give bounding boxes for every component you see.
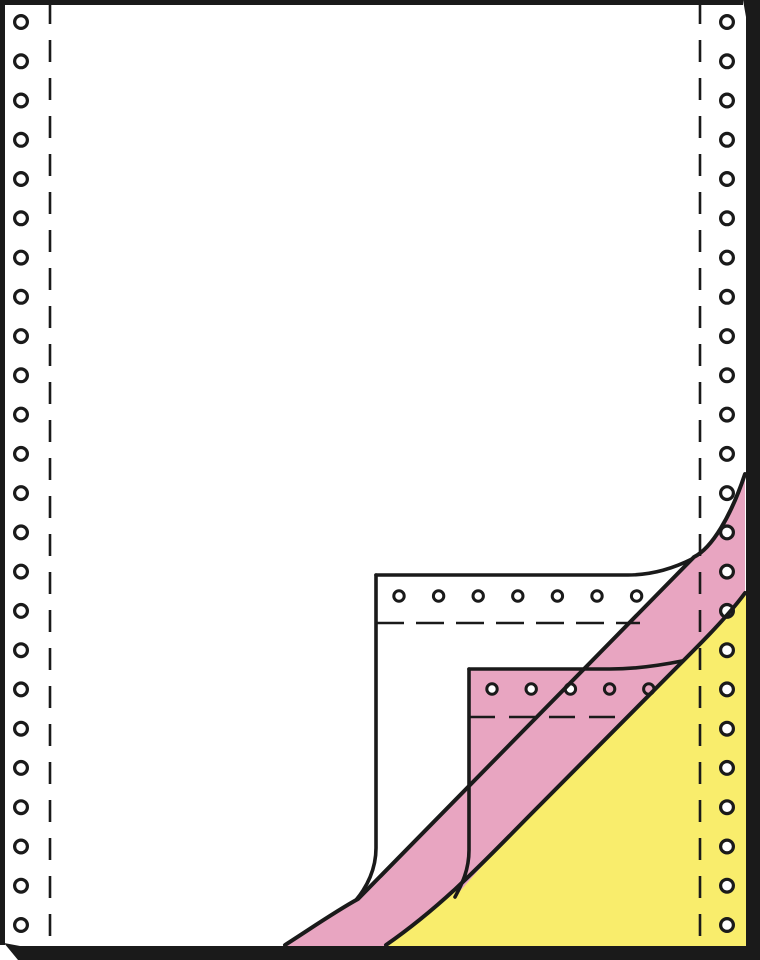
sprocket-hole bbox=[526, 684, 536, 694]
sprocket-hole bbox=[721, 722, 734, 735]
sprocket-hole bbox=[721, 173, 734, 186]
sprocket-hole bbox=[721, 644, 734, 657]
page-top-border bbox=[0, 0, 743, 5]
sprocket-hole bbox=[433, 591, 443, 601]
sprocket-hole bbox=[721, 448, 734, 461]
sprocket-hole bbox=[721, 565, 734, 578]
sprocket-hole bbox=[15, 369, 28, 382]
sprocket-hole bbox=[721, 55, 734, 68]
sprocket-hole bbox=[604, 684, 614, 694]
sprocket-hole bbox=[721, 290, 734, 303]
sprocket-hole bbox=[15, 801, 28, 814]
sprocket-hole bbox=[721, 94, 734, 107]
sprocket-hole bbox=[721, 879, 734, 892]
sprocket-hole bbox=[15, 94, 28, 107]
sprocket-hole bbox=[15, 644, 28, 657]
sprocket-hole bbox=[721, 212, 734, 225]
sprocket-hole bbox=[487, 684, 497, 694]
sprocket-hole bbox=[15, 133, 28, 146]
sprocket-hole bbox=[15, 605, 28, 618]
sprocket-hole bbox=[15, 919, 28, 932]
sprocket-hole bbox=[15, 487, 28, 500]
product-illustration-continuous-form-paper bbox=[0, 0, 760, 960]
sprocket-hole bbox=[394, 591, 404, 601]
sprocket-hole bbox=[721, 487, 734, 500]
sprocket-hole bbox=[15, 526, 28, 539]
sprocket-hole bbox=[721, 919, 734, 932]
page-left-border bbox=[0, 0, 5, 945]
sprocket-hole bbox=[721, 16, 734, 29]
sprocket-hole bbox=[15, 212, 28, 225]
sprocket-hole bbox=[721, 330, 734, 343]
sprocket-hole bbox=[592, 591, 602, 601]
sprocket-hole bbox=[15, 448, 28, 461]
sprocket-hole bbox=[721, 251, 734, 264]
sprocket-hole bbox=[721, 133, 734, 146]
sprocket-hole bbox=[15, 16, 28, 29]
sprocket-hole bbox=[721, 762, 734, 775]
sprocket-hole bbox=[15, 173, 28, 186]
sprocket-hole bbox=[721, 369, 734, 382]
sprocket-hole bbox=[631, 591, 641, 601]
sprocket-hole bbox=[15, 408, 28, 421]
sprocket-hole bbox=[721, 408, 734, 421]
sprocket-hole bbox=[15, 565, 28, 578]
sprocket-hole bbox=[15, 722, 28, 735]
sprocket-hole bbox=[513, 591, 523, 601]
sprocket-hole bbox=[15, 762, 28, 775]
sprocket-hole bbox=[721, 683, 734, 696]
sprocket-hole bbox=[15, 879, 28, 892]
sprocket-hole bbox=[473, 591, 483, 601]
sprocket-hole bbox=[15, 251, 28, 264]
sprocket-hole bbox=[15, 290, 28, 303]
sprocket-hole bbox=[15, 55, 28, 68]
sprocket-hole bbox=[552, 591, 562, 601]
paper-stack-drawing bbox=[0, 0, 760, 960]
sprocket-hole bbox=[721, 801, 734, 814]
sprocket-hole bbox=[15, 683, 28, 696]
sprocket-hole bbox=[15, 330, 28, 343]
sprocket-hole bbox=[15, 840, 28, 853]
sprocket-hole bbox=[721, 840, 734, 853]
